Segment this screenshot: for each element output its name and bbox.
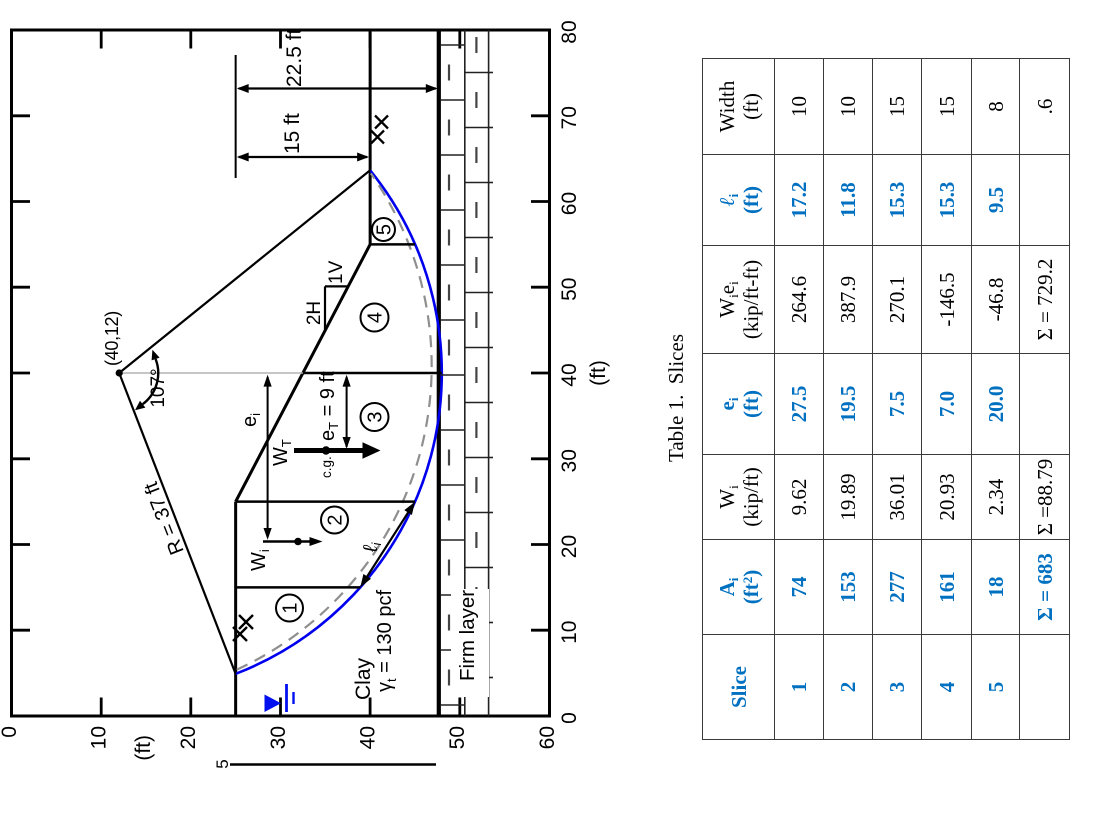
- svg-text:40: 40: [558, 363, 581, 386]
- svg-text:50: 50: [446, 726, 469, 749]
- svg-text:WT: WT: [270, 439, 294, 466]
- svg-text:70: 70: [558, 106, 581, 129]
- svg-text:(40,12): (40,12): [102, 311, 122, 366]
- svg-text:(ft): (ft): [587, 360, 610, 386]
- svg-text:10: 10: [558, 621, 581, 644]
- svg-text:Clay: Clay: [352, 657, 375, 700]
- svg-text:80: 80: [558, 20, 581, 43]
- svg-text:30: 30: [267, 726, 290, 749]
- svg-text:Firm layer: Firm layer: [456, 590, 479, 681]
- svg-text:eT = 9 ft: eT = 9 ft: [317, 371, 341, 441]
- svg-text:22.5 ft: 22.5 ft: [283, 28, 306, 87]
- svg-text:(ft): (ft): [132, 735, 155, 761]
- svg-text:γt = 130 pcf: γt = 130 pcf: [374, 590, 399, 692]
- svg-text:1V: 1V: [326, 260, 347, 284]
- svg-text:0: 0: [0, 726, 21, 738]
- svg-text:5: 5: [213, 759, 232, 768]
- svg-text:20: 20: [558, 535, 581, 558]
- svg-text:R = 37 ft: R = 37 ft: [140, 478, 189, 557]
- svg-text:ℓi: ℓi: [360, 542, 384, 553]
- svg-text:50: 50: [558, 278, 581, 301]
- svg-text:10: 10: [88, 726, 111, 749]
- svg-text:ei: ei: [239, 413, 263, 427]
- svg-text:30: 30: [558, 449, 581, 472]
- svg-text:1: 1: [280, 602, 302, 613]
- svg-text:40: 40: [356, 726, 379, 749]
- svg-text:3: 3: [365, 411, 387, 422]
- svg-text:Wi: Wi: [248, 549, 272, 571]
- svg-text:2: 2: [325, 514, 347, 525]
- svg-text:60: 60: [558, 192, 581, 215]
- svg-text:20: 20: [177, 726, 200, 749]
- svg-text:0: 0: [558, 712, 581, 724]
- svg-text:15 ft: 15 ft: [281, 113, 304, 154]
- svg-text:107°: 107°: [148, 368, 169, 407]
- svg-text:c.g.: c.g.: [319, 456, 334, 478]
- svg-text:2H: 2H: [304, 301, 325, 325]
- svg-text:4: 4: [365, 312, 387, 323]
- svg-text:60: 60: [536, 726, 559, 749]
- svg-text:5: 5: [374, 224, 396, 235]
